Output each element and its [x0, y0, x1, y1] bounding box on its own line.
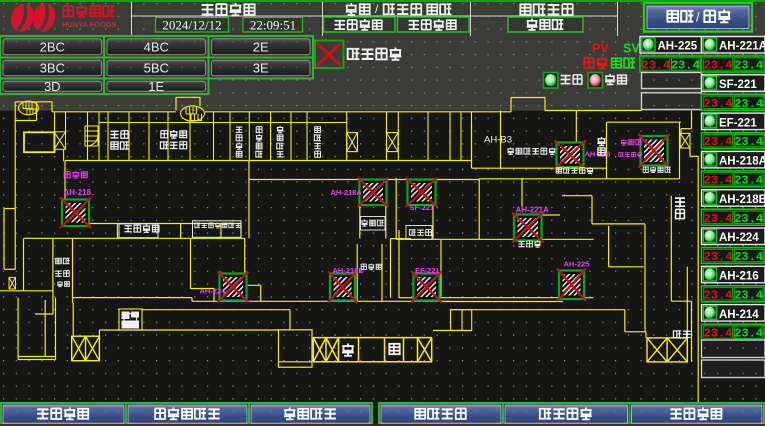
svg-text:AH-218A: AH-218A — [331, 188, 363, 197]
svg-text:PV: PV — [592, 42, 609, 56]
svg-text:1E: 1E — [148, 79, 164, 94]
svg-text:23.4: 23.4 — [734, 174, 763, 188]
svg-text:23.4: 23.4 — [704, 59, 733, 73]
svg-text:AH-225: AH-225 — [658, 41, 698, 53]
svg-text:23.4: 23.4 — [734, 250, 763, 264]
svg-text:23.4: 23.4 — [704, 174, 733, 188]
svg-text:23.4: 23.4 — [704, 135, 733, 149]
svg-text:HUNYA FOODS: HUNYA FOODS — [62, 20, 116, 29]
svg-text:3D: 3D — [44, 79, 61, 94]
svg-text:2E: 2E — [253, 39, 269, 54]
svg-text:AH-214: AH-214 — [719, 309, 759, 321]
svg-text:23.4: 23.4 — [704, 212, 733, 226]
svg-text:EF-221: EF-221 — [415, 266, 440, 275]
svg-text:AH-225: AH-225 — [564, 260, 590, 269]
svg-text:23.4: 23.4 — [734, 327, 763, 341]
svg-text:23.4: 23.4 — [734, 212, 763, 226]
svg-text:3E: 3E — [253, 61, 269, 76]
svg-text:5BC: 5BC — [144, 61, 169, 76]
svg-text:3BC: 3BC — [40, 61, 65, 76]
svg-text:AH-224: AH-224 — [719, 232, 759, 244]
svg-text:22:09:51: 22:09:51 — [250, 18, 296, 33]
svg-text:23.4: 23.4 — [642, 59, 671, 73]
svg-text:AH-B3: AH-B3 — [484, 135, 512, 146]
svg-text:AH-218A: AH-218A — [719, 156, 765, 168]
svg-text:23.4: 23.4 — [734, 97, 763, 111]
svg-text:23.4: 23.4 — [671, 59, 700, 73]
svg-text:AH-221A: AH-221A — [516, 206, 550, 215]
svg-text:SF-221: SF-221 — [410, 203, 435, 212]
svg-text:2024/12/12: 2024/12/12 — [162, 18, 221, 33]
svg-text:AH-221A: AH-221A — [719, 41, 765, 53]
svg-text:SV: SV — [623, 42, 640, 56]
svg-text:23.4: 23.4 — [734, 59, 763, 73]
svg-text:/: / — [696, 10, 700, 25]
svg-text:23.4: 23.4 — [704, 97, 733, 111]
svg-text:AH-216: AH-216 — [719, 271, 759, 283]
svg-text:2BC: 2BC — [40, 39, 65, 54]
svg-text:AH-218B: AH-218B — [333, 266, 365, 275]
svg-text:23.4: 23.4 — [704, 250, 733, 264]
svg-text:AH-218B: AH-218B — [719, 194, 765, 206]
svg-text:23.4: 23.4 — [734, 135, 763, 149]
svg-text:23.4: 23.4 — [704, 288, 733, 302]
svg-text:AH-218: AH-218 — [64, 188, 92, 197]
svg-text:SF-221: SF-221 — [719, 79, 757, 91]
svg-text:23.4: 23.4 — [734, 288, 763, 302]
svg-text:4BC: 4BC — [144, 39, 169, 54]
svg-text:23.4: 23.4 — [704, 327, 733, 341]
svg-text:EF-221: EF-221 — [719, 117, 757, 129]
svg-text:AH-224: AH-224 — [200, 287, 227, 296]
